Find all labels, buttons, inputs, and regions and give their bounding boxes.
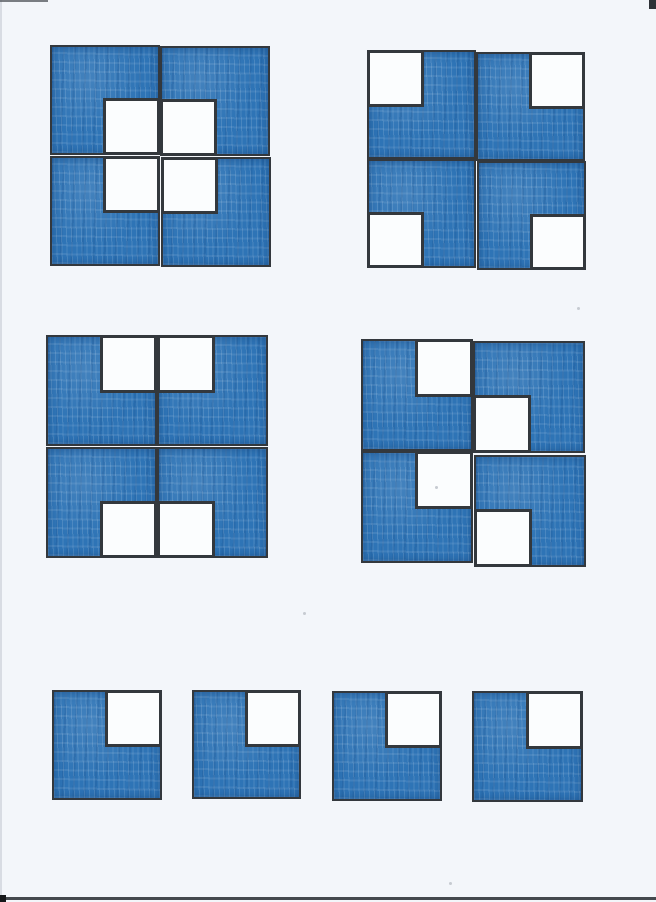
- blue-l-tile: [474, 455, 586, 567]
- scan-speck: [449, 882, 452, 885]
- white-corner-square: [103, 156, 160, 213]
- blue-l-tile: [361, 339, 473, 451]
- scan-left-edge: [0, 0, 2, 902]
- blue-l-tile-single: [52, 690, 162, 800]
- scan-corner-mark: [649, 0, 656, 9]
- white-corner-square: [100, 501, 158, 559]
- white-corner-square: [100, 335, 158, 393]
- white-corner-square: [161, 157, 218, 214]
- figure-1-center-window: [50, 45, 276, 273]
- blue-l-tile: [46, 335, 157, 446]
- white-corner-square: [529, 52, 586, 109]
- blue-l-tile-single: [332, 691, 442, 801]
- blue-l-tile: [50, 156, 160, 266]
- scan-bottom-edge: [0, 897, 656, 900]
- white-corner-square: [474, 509, 532, 567]
- white-corner-square: [473, 395, 531, 453]
- blue-l-tile: [50, 45, 160, 155]
- blue-l-tile-single: [192, 690, 301, 799]
- figure-4-zigzag-windows: [361, 339, 591, 571]
- blue-l-tile: [161, 157, 271, 267]
- white-corner-square: [103, 98, 160, 155]
- scan-top-edge: [0, 0, 48, 2]
- white-corner-square: [105, 690, 162, 747]
- white-corner-square: [245, 690, 302, 747]
- blue-l-tile: [361, 451, 473, 563]
- white-corner-square: [415, 451, 473, 509]
- blue-l-tile: [473, 341, 585, 453]
- scan-speck: [577, 307, 580, 310]
- white-corner-square: [385, 691, 442, 748]
- white-corner-square: [367, 50, 424, 107]
- white-corner-square: [526, 691, 584, 749]
- scan-speck: [435, 486, 438, 489]
- white-corner-square: [157, 501, 215, 559]
- scan-speck: [303, 612, 306, 615]
- white-corner-square: [367, 212, 424, 269]
- blue-l-tile: [367, 159, 476, 268]
- white-corner-square: [160, 99, 217, 156]
- blue-l-tile: [476, 52, 585, 161]
- white-corner-square: [530, 214, 587, 271]
- white-corner-square: [157, 335, 215, 393]
- scan-corner-blob: [0, 895, 6, 902]
- blue-l-tile: [157, 335, 268, 446]
- blue-l-tile: [157, 447, 268, 558]
- blue-l-tile: [367, 50, 476, 159]
- blue-l-tile-single: [472, 691, 583, 802]
- blue-l-tile: [477, 161, 586, 270]
- figure-2-corner-windows-cross: [367, 50, 591, 276]
- figure-3-top-bottom-windows: [46, 335, 274, 565]
- white-corner-square: [415, 339, 473, 397]
- worksheet-page: [0, 0, 656, 902]
- blue-l-tile: [46, 447, 157, 558]
- blue-l-tile: [160, 46, 270, 156]
